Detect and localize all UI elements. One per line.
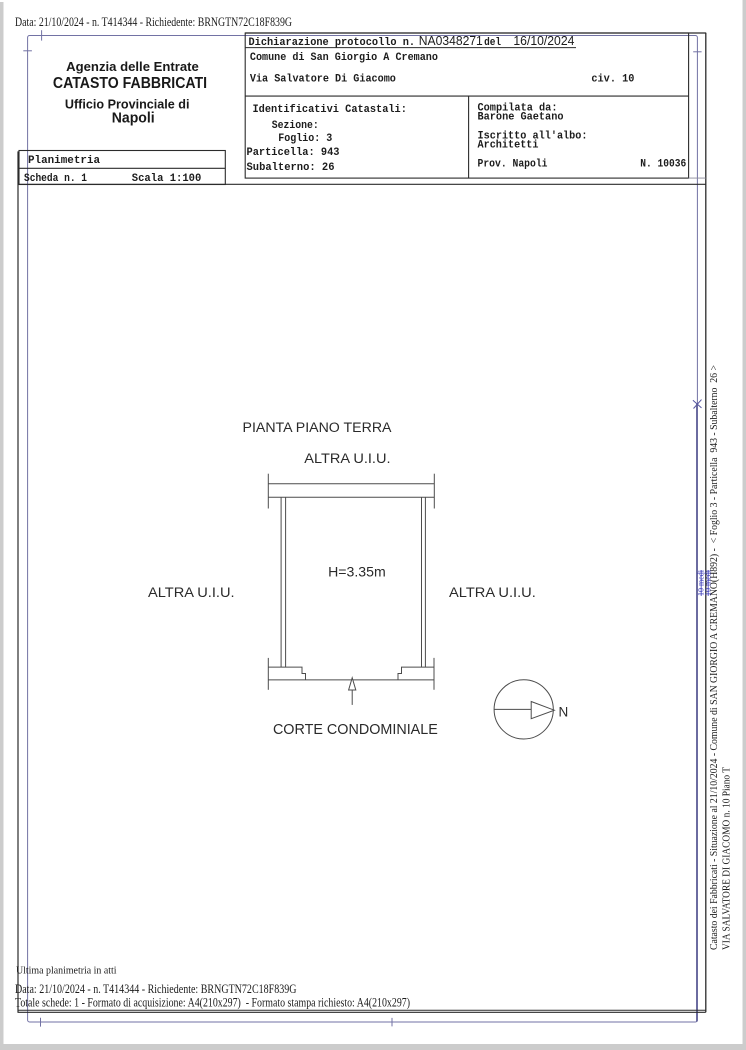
svg-text:Scheda n. 1: Scheda n. 1 [24, 173, 87, 185]
svg-text:Prov. Napoli: Prov. Napoli [478, 159, 548, 171]
svg-text:N. 10036: N. 10036 [640, 159, 686, 171]
svg-text:Barone Gaetano: Barone Gaetano [478, 112, 564, 124]
svg-text:H=3.35m: H=3.35m [328, 564, 386, 580]
svg-text:Napoli: Napoli [112, 110, 155, 127]
svg-text:civ. 10: civ. 10 [591, 74, 634, 86]
svg-text:VIA SALVATORE DI GIACOMO n. 10: VIA SALVATORE DI GIACOMO n. 10 Piano T [721, 767, 732, 950]
svg-text:Planimetria: Planimetria [28, 155, 101, 167]
svg-text:Data: 21/10/2024 - n. T414344: Data: 21/10/2024 - n. T414344 - Richiede… [15, 982, 297, 996]
svg-text:16/10/2024: 16/10/2024 [513, 34, 574, 48]
svg-text:ALTRA U.I.U.: ALTRA U.I.U. [449, 585, 536, 600]
svg-text:Identificativi Catastali:: Identificativi Catastali: [253, 104, 407, 116]
svg-text:ALTRA U.I.U.: ALTRA U.I.U. [304, 451, 390, 466]
svg-text:Ultima planimetria in atti: Ultima planimetria in atti [16, 964, 117, 976]
svg-text:Via Salvatore Di Giacomo: Via Salvatore Di Giacomo [250, 74, 396, 86]
svg-text:Catasto dei Fabbricati - Situa: Catasto dei Fabbricati - Situazione al 2… [709, 365, 720, 950]
svg-text:10 medi: 10 medi [704, 569, 713, 596]
svg-text:Foglio: 3: Foglio: 3 [278, 133, 332, 145]
svg-text:Subalterno: 26: Subalterno: 26 [247, 162, 335, 174]
svg-text:Agenzia delle Entrate: Agenzia delle Entrate [66, 59, 199, 74]
svg-text:Scala 1:100: Scala 1:100 [132, 173, 202, 185]
svg-text:ALTRA U.I.U.: ALTRA U.I.U. [148, 585, 235, 600]
svg-text:Totale schede: 1 - Formato di: Totale schede: 1 - Formato di acquisizio… [15, 996, 410, 1010]
svg-text:Sezione:: Sezione: [272, 120, 319, 132]
svg-text:Architetti: Architetti [478, 140, 539, 152]
svg-text:Comune di San Giorgio A Creman: Comune di San Giorgio A Cremano [250, 52, 438, 64]
svg-text:Particella: 943: Particella: 943 [247, 147, 340, 159]
svg-text:Data: 21/10/2024 - n. T414344: Data: 21/10/2024 - n. T414344 - Richiede… [15, 15, 292, 29]
svg-text:CORTE CONDOMINIALE: CORTE CONDOMINIALE [273, 722, 438, 738]
svg-text:NA0348271: NA0348271 [419, 34, 483, 48]
svg-text:PIANTA PIANO TERRA: PIANTA PIANO TERRA [243, 420, 392, 435]
svg-text:N: N [559, 704, 569, 719]
svg-text:CATASTO FABBRICATI: CATASTO FABBRICATI [53, 75, 207, 92]
